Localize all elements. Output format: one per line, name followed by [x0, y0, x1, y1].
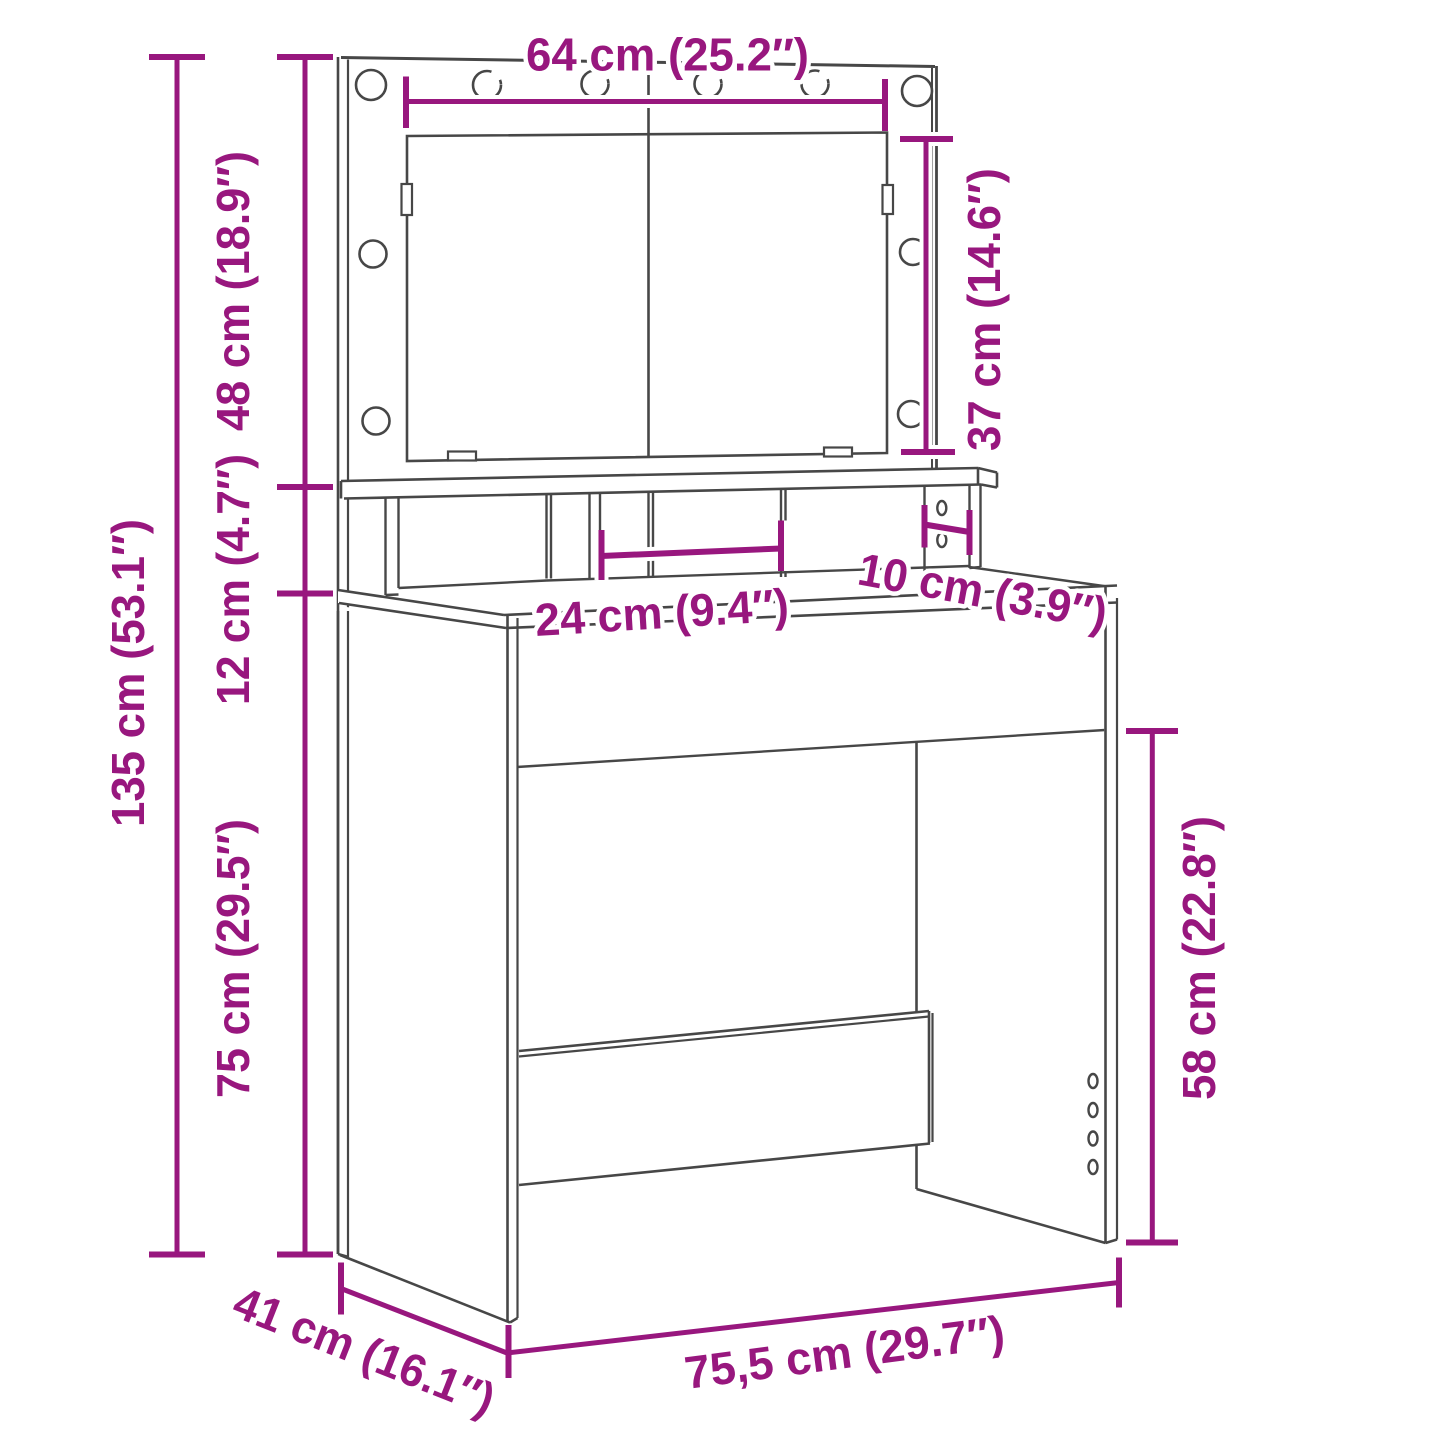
svg-text:37 cm (14.6″): 37 cm (14.6″) — [958, 168, 1010, 451]
svg-text:58 cm (22.8″): 58 cm (22.8″) — [1173, 816, 1225, 1100]
svg-text:12 cm (4.7″): 12 cm (4.7″) — [207, 454, 259, 705]
svg-text:135 cm (53.1″): 135 cm (53.1″) — [102, 519, 154, 827]
svg-text:64 cm (25.2″): 64 cm (25.2″) — [526, 29, 809, 81]
svg-text:75 cm (29.5″): 75 cm (29.5″) — [207, 819, 259, 1098]
svg-text:48 cm (18.9″): 48 cm (18.9″) — [207, 151, 259, 431]
